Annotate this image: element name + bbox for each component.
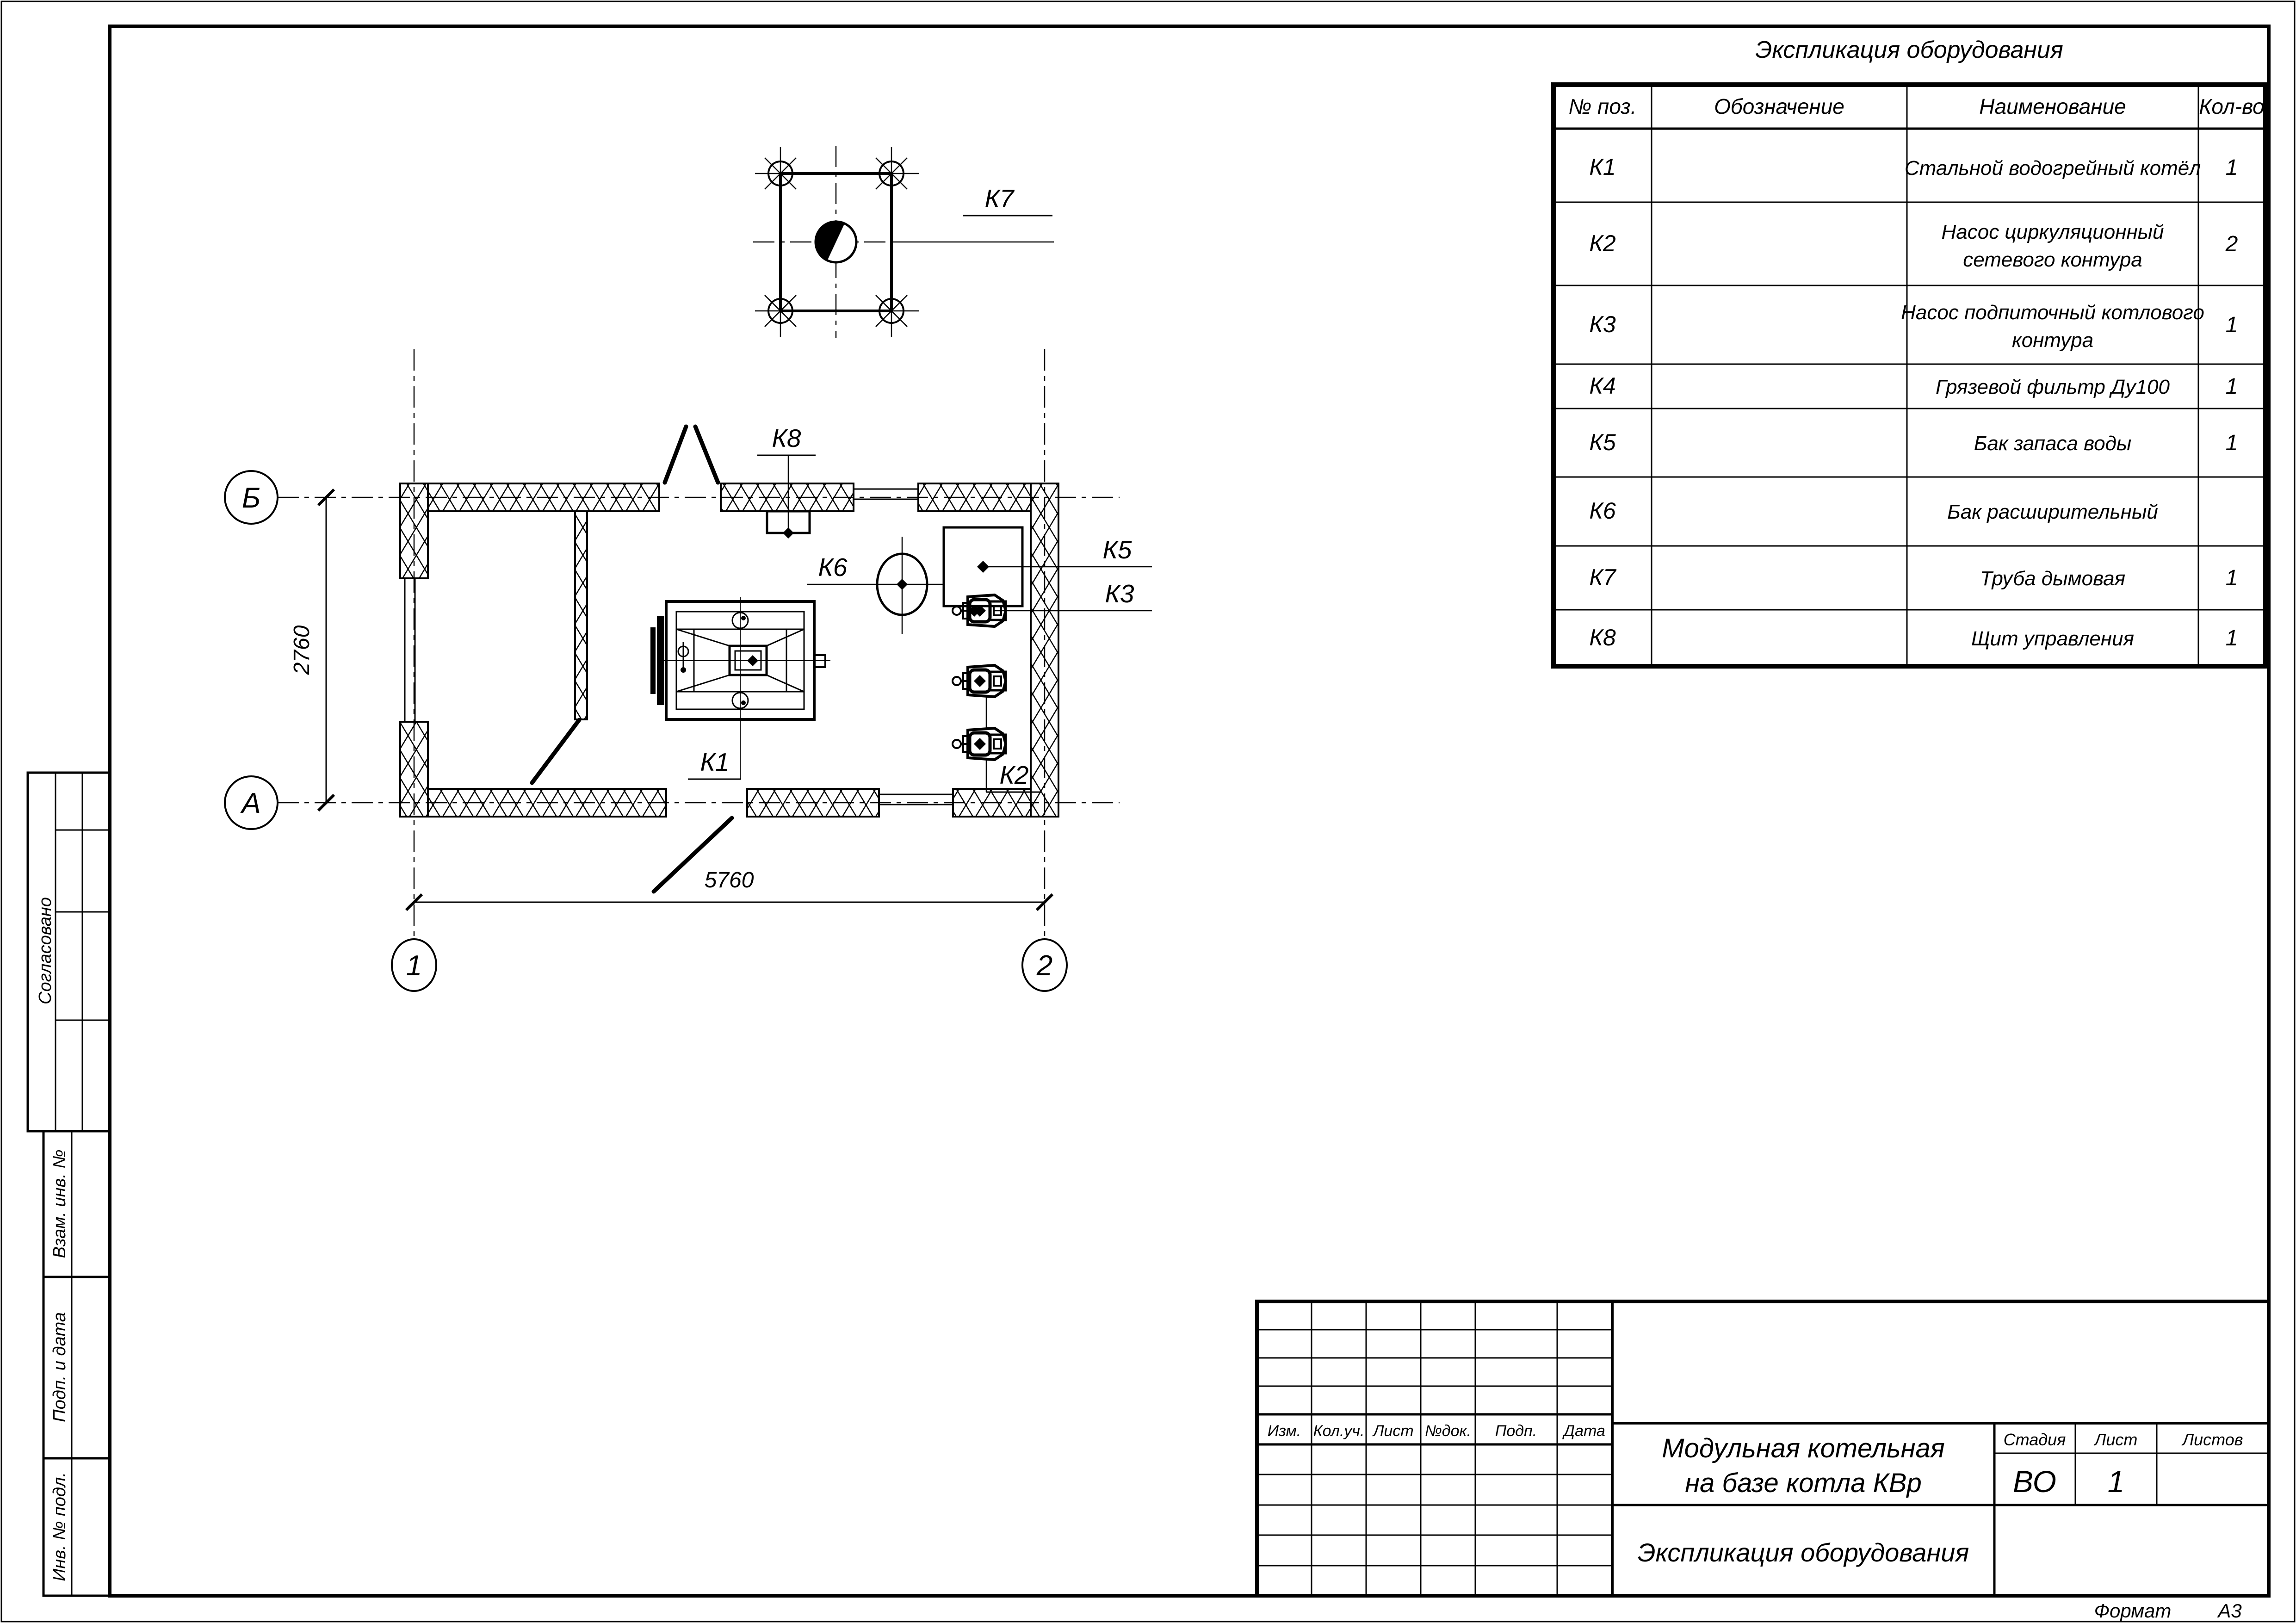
dim-2760: 2760 bbox=[290, 625, 314, 675]
row-pos: К4 bbox=[1589, 373, 1615, 399]
row-name: Грязевой фильтр Ду100 bbox=[1936, 376, 2170, 398]
tb-header-list: Лист bbox=[1372, 1422, 1414, 1440]
tb-stage-label: Стадия bbox=[2004, 1430, 2066, 1449]
row-name: Бак запаса воды bbox=[1974, 432, 2132, 455]
row-pos: К2 bbox=[1589, 230, 1615, 256]
row-qty: 2 bbox=[2225, 232, 2238, 256]
row-qty: 1 bbox=[2226, 374, 2238, 399]
axis-label-2: 2 bbox=[1036, 950, 1052, 982]
tb-doc-title: Экспликация оборудования bbox=[1638, 1538, 1969, 1567]
tag-k6: К6 bbox=[818, 553, 847, 582]
tag-k3: К3 bbox=[1105, 579, 1134, 608]
row-pos: К1 bbox=[1589, 154, 1615, 180]
tb-sheet-label: Лист bbox=[2094, 1430, 2138, 1449]
dim-5760: 5760 bbox=[705, 868, 754, 892]
page-background bbox=[0, 0, 2296, 1623]
tb-sheet-value: 1 bbox=[2108, 1464, 2125, 1499]
row-name: Насос циркуляционный bbox=[1941, 221, 2164, 243]
tb-header-podp: Подп. bbox=[1495, 1422, 1537, 1440]
axis-label-1: 1 bbox=[406, 950, 422, 982]
chimney-pipe-icon bbox=[816, 222, 856, 262]
tag-k2: К2 bbox=[999, 761, 1028, 789]
col-header-pos: № поз. bbox=[1568, 94, 1636, 118]
row-name: Стальной водогрейный котёл bbox=[1905, 157, 2201, 180]
row-qty: 1 bbox=[2226, 313, 2238, 337]
row-name: Труба дымовая bbox=[1980, 567, 2125, 590]
partition-wall bbox=[575, 511, 587, 719]
format-label: Формат bbox=[2094, 1600, 2172, 1622]
stamp-inv-orig-label: Инв. № подл. bbox=[50, 1472, 69, 1581]
drawing-sheet: Согласовано Взам. инв. № Подп. и дата Ин… bbox=[0, 0, 2296, 1623]
row-qty: 1 bbox=[2226, 626, 2238, 650]
tb-sheets-label: Листов bbox=[2181, 1430, 2243, 1449]
row-qty: 1 bbox=[2226, 566, 2238, 590]
row-pos: К5 bbox=[1589, 429, 1615, 455]
row-pos: К3 bbox=[1589, 311, 1615, 337]
tb-header-koluch: Кол.уч. bbox=[1313, 1422, 1365, 1440]
row-name: сетевого контура bbox=[1963, 248, 2142, 271]
tb-project-line2: на базе котла КВр bbox=[1685, 1468, 1921, 1498]
col-header-designation: Обозначение bbox=[1714, 94, 1844, 118]
row-pos: К7 bbox=[1589, 564, 1616, 590]
boiler-door-icon bbox=[657, 616, 664, 705]
format-note: Формат А3 bbox=[2094, 1600, 2242, 1622]
row-name: Насос подпиточный котлового bbox=[1901, 301, 2204, 324]
col-header-name: Наименование bbox=[1979, 94, 2126, 118]
equipment-table-title: Экспликация оборудования bbox=[1755, 37, 2063, 63]
row-pos: К8 bbox=[1589, 625, 1615, 650]
tb-header-data: Дата bbox=[1562, 1422, 1605, 1440]
tb-header-izm: Изм. bbox=[1268, 1422, 1301, 1440]
stamp-replace-inv-label: Взам. инв. № bbox=[50, 1149, 69, 1258]
row-qty: 1 bbox=[2226, 431, 2238, 455]
tag-k8: К8 bbox=[772, 424, 801, 452]
tb-stage-value: ВО bbox=[2013, 1464, 2056, 1499]
row-name: Щит управления bbox=[1971, 627, 2134, 650]
tb-project-line1: Модульная котельная bbox=[1662, 1433, 1944, 1463]
stamp-approved-label: Согласовано bbox=[36, 897, 55, 1004]
row-pos: К6 bbox=[1589, 498, 1615, 524]
row-name: Бак расширительный bbox=[1947, 501, 2158, 523]
stamp-sign-date-label: Подп. и дата bbox=[50, 1312, 69, 1422]
tb-header-ndok: №док. bbox=[1425, 1422, 1471, 1440]
row-qty: 1 bbox=[2226, 155, 2238, 180]
col-header-qty: Кол-во bbox=[2199, 94, 2265, 118]
format-value: А3 bbox=[2216, 1600, 2241, 1622]
axis-label-b: Б bbox=[242, 482, 260, 514]
tag-k7: К7 bbox=[984, 184, 1015, 213]
tag-k5: К5 bbox=[1102, 535, 1132, 564]
tag-k1: К1 bbox=[700, 748, 729, 776]
axis-label-a: А bbox=[240, 787, 260, 819]
row-name: контура bbox=[2012, 329, 2093, 352]
